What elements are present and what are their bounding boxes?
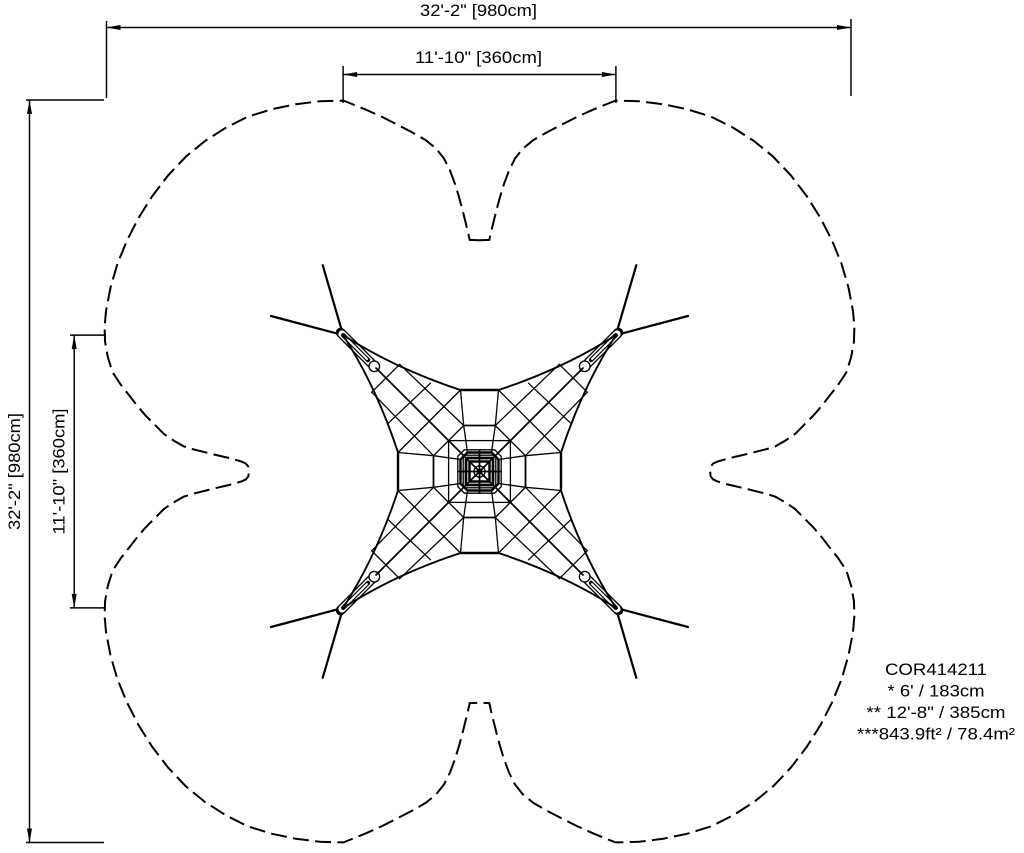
- svg-text:* 6' / 183cm: * 6' / 183cm: [888, 683, 985, 701]
- svg-text:32'-2" [980cm]: 32'-2" [980cm]: [420, 2, 537, 20]
- svg-text:32'-2" [980cm]: 32'-2" [980cm]: [6, 413, 24, 530]
- svg-text:11'-10" [360cm]: 11'-10" [360cm]: [415, 49, 542, 67]
- svg-text:11'-10" [360cm]: 11'-10" [360cm]: [51, 409, 69, 535]
- svg-text:COR414211: COR414211: [885, 661, 987, 679]
- svg-text:***843.9ft² / 78.4m²: ***843.9ft² / 78.4m²: [857, 726, 1016, 744]
- svg-text:** 12'-8" / 385cm: ** 12'-8" / 385cm: [867, 704, 1006, 722]
